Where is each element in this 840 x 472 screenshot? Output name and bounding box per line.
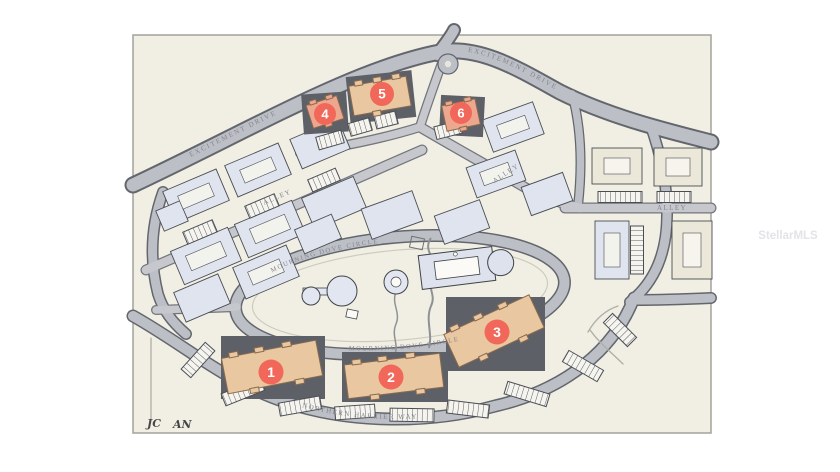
svg-text:6: 6: [457, 106, 464, 121]
signature-right: AN: [172, 418, 193, 431]
stellar-mls-watermark: StellarMLS: [758, 230, 818, 242]
svg-text:2: 2: [387, 369, 395, 385]
svg-text:1: 1: [267, 364, 275, 380]
building-marker-1: 1: [259, 360, 284, 385]
svg-text:4: 4: [321, 107, 329, 122]
site-plan-map: 1 2 3 4 5 6 EXCITEMENT DRIVE EXCITEMENT …: [0, 0, 840, 472]
site-plan-screenshot: 1 2 3 4 5 6 EXCITEMENT DRIVE EXCITEMENT …: [0, 0, 840, 472]
building-marker-3: 3: [485, 320, 510, 345]
signature-left: JC: [145, 417, 161, 430]
svg-text:3: 3: [493, 324, 501, 340]
label-alley-right: ALLEY: [657, 204, 687, 212]
svg-text:5: 5: [378, 87, 386, 102]
building-marker-6: 6: [450, 102, 472, 124]
building-marker-2: 2: [379, 365, 404, 390]
building-marker-5: 5: [370, 82, 394, 106]
building-marker-4: 4: [314, 103, 336, 125]
